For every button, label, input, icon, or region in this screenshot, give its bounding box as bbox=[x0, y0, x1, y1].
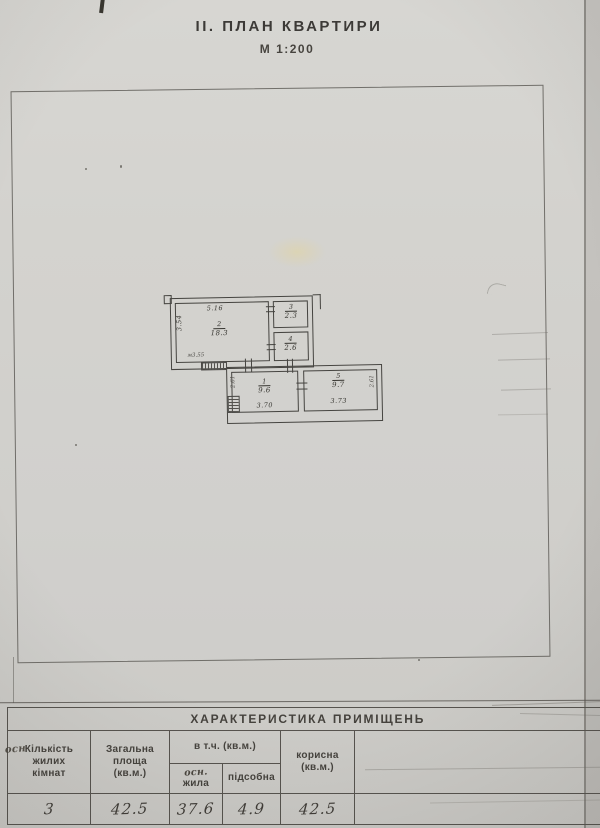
door-tick bbox=[267, 344, 276, 345]
room-4-number: 4 bbox=[284, 335, 296, 344]
room-3-area: 2.3 bbox=[285, 312, 298, 321]
scanned-document-page: { "page": { "title": "ІІ. ПЛАН КВАРТИРИ"… bbox=[0, 0, 600, 828]
header-line: площа bbox=[113, 756, 147, 767]
room-4-area: 2.6 bbox=[284, 344, 297, 353]
header-living-area: осн. жила bbox=[170, 763, 223, 793]
header-line: (кв.м.) bbox=[301, 762, 334, 773]
wall-hatch bbox=[228, 396, 240, 413]
room-5-number: 5 bbox=[332, 372, 344, 381]
pencil-smudge bbox=[492, 701, 600, 706]
room-3-label: 3 2.3 bbox=[278, 303, 304, 321]
door-tick bbox=[266, 311, 275, 312]
room-2-note: м3.55 bbox=[181, 352, 211, 359]
header-line: жила bbox=[183, 778, 209, 789]
room-1-area: 9.6 bbox=[258, 386, 271, 395]
window-hatch bbox=[201, 362, 227, 370]
value-total-area: 42.5 bbox=[91, 794, 170, 825]
empty-value-cell bbox=[355, 794, 600, 825]
room-2-side-dimension: 3.54 bbox=[175, 310, 183, 336]
header-total-area: Загальна площа (кв.м.) bbox=[91, 731, 170, 794]
table-top-rule bbox=[0, 700, 600, 704]
page-title: ІІ. ПЛАН КВАРТИРИ bbox=[0, 18, 578, 35]
header-line: жилих bbox=[33, 756, 66, 767]
value-useful-area: 42.5 bbox=[281, 794, 355, 825]
left-margin-line bbox=[13, 657, 14, 703]
handwritten-annotation: осн bbox=[5, 743, 27, 756]
room-5-area: 9.7 bbox=[332, 381, 345, 390]
header-line: (кв.м.) bbox=[114, 768, 147, 779]
scan-artifact bbox=[99, 0, 105, 13]
room-2-label: 2 18.3 bbox=[204, 320, 234, 338]
header-line: Загальна bbox=[106, 744, 154, 755]
empty-header-cell bbox=[355, 731, 600, 794]
header-line: кімнат bbox=[32, 768, 65, 779]
room-1-label: 1 9.6 bbox=[249, 377, 279, 395]
page-edge-strip bbox=[586, 0, 600, 828]
room-2-number: 2 bbox=[213, 320, 225, 329]
room-2-top-dimension: 5.16 bbox=[190, 304, 240, 313]
door-tick bbox=[296, 388, 307, 389]
room-5-side-dimension: 2.61 bbox=[369, 370, 375, 392]
room-5-bottom-dimension: 3.73 bbox=[319, 396, 359, 405]
room-3-number: 3 bbox=[285, 303, 297, 312]
room-1-bottom-dimension: 3.70 bbox=[245, 401, 285, 410]
header-including: в т.ч. (кв.м.) bbox=[170, 731, 281, 764]
value-rooms-count: 3 bbox=[8, 794, 91, 825]
door-tick bbox=[267, 349, 276, 350]
value-living-area: 37.6 bbox=[170, 794, 223, 825]
room-2-area: 18.3 bbox=[211, 329, 229, 338]
room-1-number: 1 bbox=[258, 377, 270, 386]
header-line: корисна bbox=[296, 750, 339, 761]
scale-label: М 1:200 bbox=[0, 42, 574, 56]
wall-stub-right bbox=[320, 294, 321, 309]
floor-plan: 5.16 2 18.3 3.54 м3.55 3 2.3 4 2.6 1 9.6… bbox=[162, 288, 397, 440]
door-tick bbox=[296, 382, 307, 383]
header-line: Кількість bbox=[25, 744, 73, 755]
table-title: ХАРАКТЕРИСТИКА ПРИМІЩЕНЬ bbox=[8, 708, 600, 731]
header-useful-area: корисна (кв.м.) bbox=[281, 731, 355, 794]
room-4-label: 4 2.6 bbox=[277, 335, 303, 353]
wall-stub-topleft bbox=[164, 295, 172, 304]
header-auxiliary-area: підсобна bbox=[223, 763, 281, 793]
room-1-side-dimension: 2.61 bbox=[230, 372, 236, 392]
page-edge-shadow bbox=[584, 0, 586, 828]
door-tick bbox=[266, 306, 275, 307]
handwritten-annotation: осн. bbox=[170, 765, 223, 779]
header-rooms-count: Кількість осн жилих кімнат bbox=[8, 731, 91, 794]
premises-characteristics-table: ХАРАКТЕРИСТИКА ПРИМІЩЕНЬ Кількість осн ж… bbox=[7, 707, 600, 825]
room-5-label: 5 9.7 bbox=[321, 372, 355, 391]
scan-speck bbox=[418, 659, 420, 661]
value-auxiliary-area: 4.9 bbox=[223, 794, 281, 825]
